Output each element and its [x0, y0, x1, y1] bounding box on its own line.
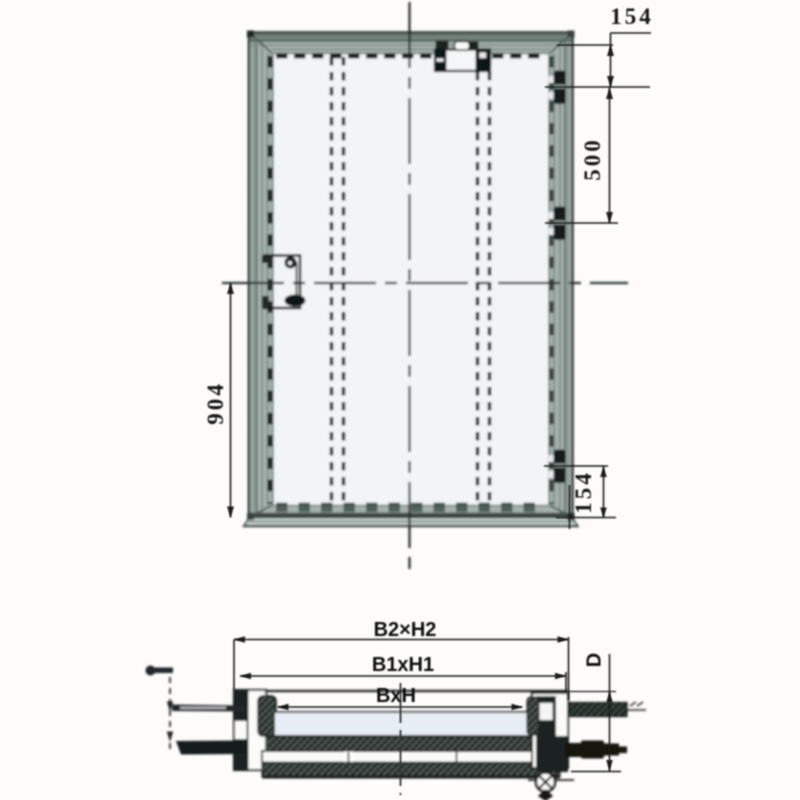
svg-text:904: 904 [203, 381, 228, 425]
svg-text:500: 500 [580, 137, 605, 181]
svg-text:B1xH1: B1xH1 [372, 654, 434, 676]
svg-text:154: 154 [610, 4, 654, 29]
svg-text:BxH: BxH [376, 685, 416, 707]
svg-text:D: D [584, 653, 606, 667]
svg-text:B2×H2: B2×H2 [374, 619, 437, 641]
svg-text:154: 154 [571, 470, 596, 514]
